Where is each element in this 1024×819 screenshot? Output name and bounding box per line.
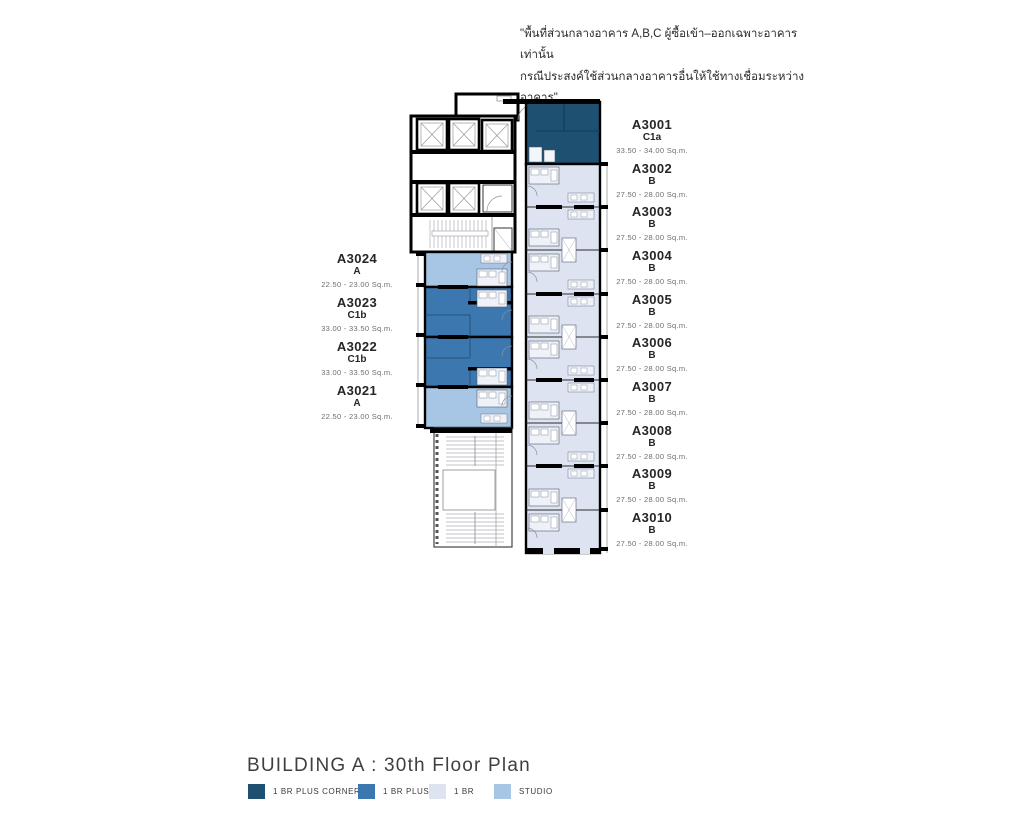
unit-type: A (302, 398, 412, 410)
unit-number: A3022 (302, 340, 412, 354)
right-unit-column (526, 99, 608, 554)
unit-label-a3002: A3002 B 27.50 - 28.00 Sq.m. (597, 162, 707, 199)
legend-swatch-studio (494, 784, 511, 799)
unit-type: B (597, 263, 707, 275)
unit-area: 27.50 - 28.00 Sq.m. (597, 539, 707, 548)
unit-number: A3002 (597, 162, 707, 176)
unit-area: 27.50 - 28.00 Sq.m. (597, 452, 707, 461)
legend-label: STUDIO (519, 784, 553, 799)
legend-swatch-1br (429, 784, 446, 799)
unit-number: A3006 (597, 336, 707, 350)
unit-type: B (597, 394, 707, 406)
unit-type: B (597, 176, 707, 188)
unit-label-a3024: A3024 A 22.50 - 23.00 Sq.m. (302, 252, 412, 289)
stair-core (430, 428, 512, 547)
floor-plan-drawing (0, 0, 1024, 819)
unit-number: A3007 (597, 380, 707, 394)
unit-label-a3009: A3009 B 27.50 - 28.00 Sq.m. (597, 467, 707, 504)
legend-label: 1 BR PLUS CORNER (273, 784, 360, 799)
unit-label-a3006: A3006 B 27.50 - 28.00 Sq.m. (597, 336, 707, 373)
unit-number: A3005 (597, 293, 707, 307)
unit-label-a3023: A3023 C1b 33.00 - 33.50 Sq.m. (302, 296, 412, 333)
unit-type: B (597, 219, 707, 231)
unit-number: A3021 (302, 384, 412, 398)
unit-type: B (597, 307, 707, 319)
unit-area: 33.00 - 33.50 Sq.m. (302, 368, 412, 377)
unit-number: A3023 (302, 296, 412, 310)
unit-label-a3001: A3001 C1a 33.50 - 34.00 Sq.m. (597, 118, 707, 155)
unit-type: C1b (302, 310, 412, 322)
unit-type: B (597, 350, 707, 362)
page-title: BUILDING A : 30th Floor Plan (247, 755, 531, 777)
unit-type: C1b (302, 354, 412, 366)
unit-area: 27.50 - 28.00 Sq.m. (597, 408, 707, 417)
unit-number: A3009 (597, 467, 707, 481)
legend-label: 1 BR (454, 784, 474, 799)
unit-label-a3007: A3007 B 27.50 - 28.00 Sq.m. (597, 380, 707, 417)
unit-area: 33.00 - 33.50 Sq.m. (302, 324, 412, 333)
unit-area: 27.50 - 28.00 Sq.m. (597, 190, 707, 199)
unit-area: 27.50 - 28.00 Sq.m. (597, 364, 707, 373)
legend-item-studio: STUDIO (494, 784, 553, 799)
unit-label-a3010: A3010 B 27.50 - 28.00 Sq.m. (597, 511, 707, 548)
unit-label-a3008: A3008 B 27.50 - 28.00 Sq.m. (597, 424, 707, 461)
unit-area: 22.50 - 23.00 Sq.m. (302, 412, 412, 421)
unit-area: 33.50 - 34.00 Sq.m. (597, 146, 707, 155)
unit-type: B (597, 481, 707, 493)
legend-swatch-1br-plus-corner (248, 784, 265, 799)
unit-area: 27.50 - 28.00 Sq.m. (597, 277, 707, 286)
unit-type: A (302, 266, 412, 278)
unit-number: A3008 (597, 424, 707, 438)
legend-item-1br: 1 BR (429, 784, 474, 799)
service-core (411, 94, 533, 252)
unit-area: 27.50 - 28.00 Sq.m. (597, 321, 707, 330)
unit-number: A3010 (597, 511, 707, 525)
unit-label-a3021: A3021 A 22.50 - 23.00 Sq.m. (302, 384, 412, 421)
unit-number: A3004 (597, 249, 707, 263)
legend-swatch-1br-plus (358, 784, 375, 799)
unit-type: C1a (597, 132, 707, 144)
left-unit-column (416, 252, 512, 428)
unit-area: 22.50 - 23.00 Sq.m. (302, 280, 412, 289)
unit-label-a3003: A3003 B 27.50 - 28.00 Sq.m. (597, 205, 707, 242)
unit-type: B (597, 438, 707, 450)
legend-label: 1 BR PLUS (383, 784, 429, 799)
legend-item-1br-plus: 1 BR PLUS (358, 784, 429, 799)
unit-number: A3024 (302, 252, 412, 266)
unit-label-a3004: A3004 B 27.50 - 28.00 Sq.m. (597, 249, 707, 286)
unit-number: A3001 (597, 118, 707, 132)
unit-label-a3022: A3022 C1b 33.00 - 33.50 Sq.m. (302, 340, 412, 377)
unit-number: A3003 (597, 205, 707, 219)
legend-item-1br-plus-corner: 1 BR PLUS CORNER (248, 784, 360, 799)
unit-area: 27.50 - 28.00 Sq.m. (597, 495, 707, 504)
unit-label-a3005: A3005 B 27.50 - 28.00 Sq.m. (597, 293, 707, 330)
unit-area: 27.50 - 28.00 Sq.m. (597, 233, 707, 242)
unit-type: B (597, 525, 707, 537)
